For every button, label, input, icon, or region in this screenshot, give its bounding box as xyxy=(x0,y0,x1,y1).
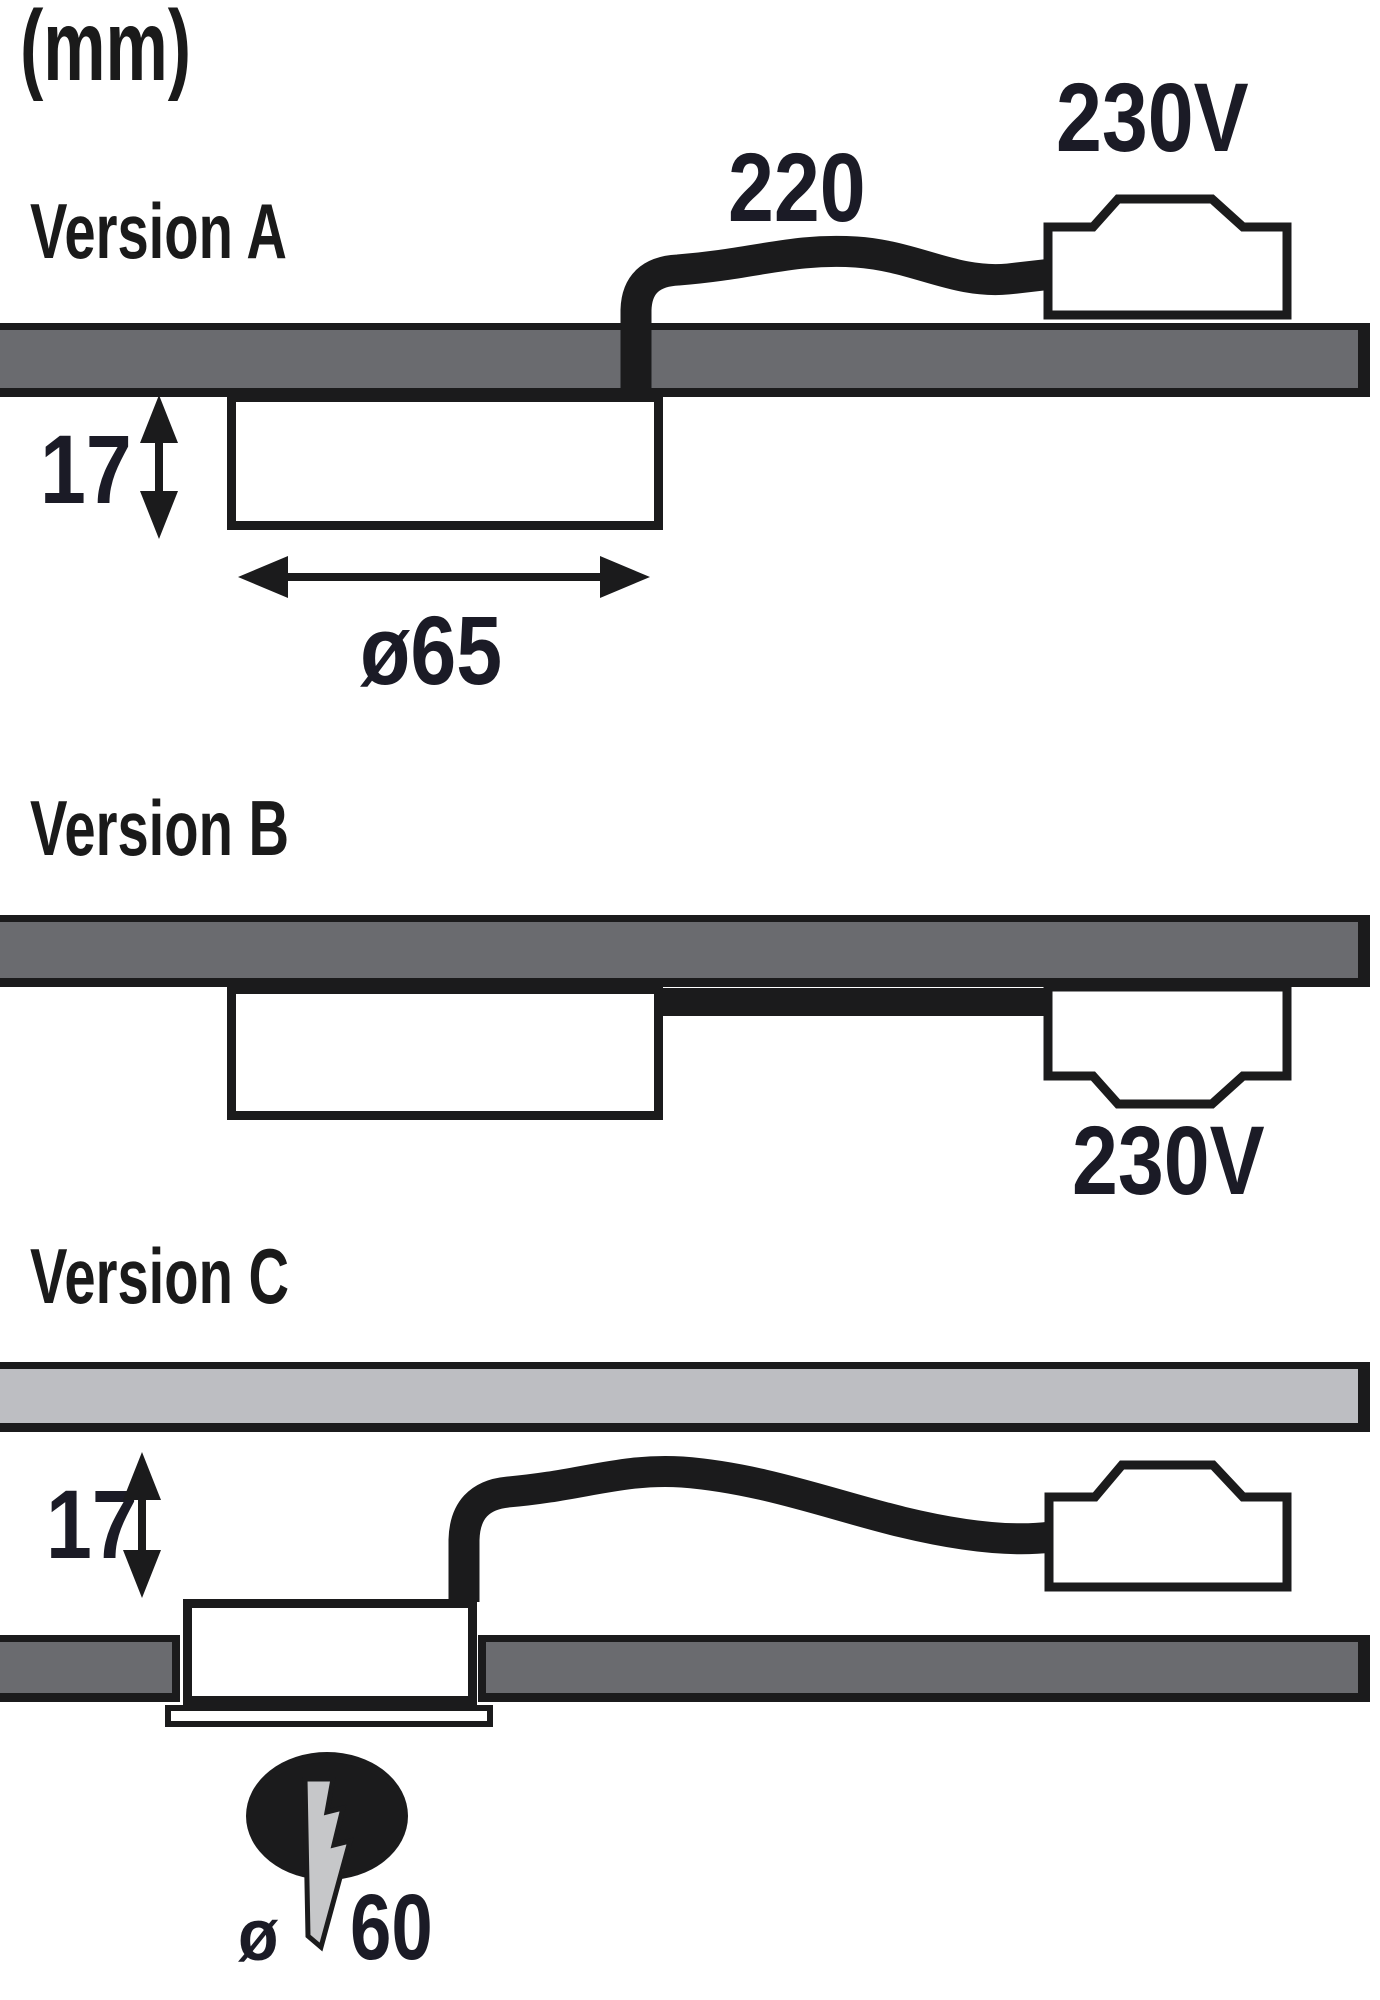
version-a-depth-label: 17 xyxy=(40,421,132,518)
version-c-trim-ring xyxy=(165,1705,493,1727)
version-c-depth-label: 17 xyxy=(46,1476,138,1573)
version-b-label: Version B xyxy=(30,789,289,867)
version-a-cable-length-label: 220 xyxy=(728,139,866,236)
version-c-hole-diameter-label: 60 xyxy=(350,1881,433,1974)
version-c-lower-board-left xyxy=(0,1635,180,1702)
lightning-bolt-icon xyxy=(305,1779,350,1947)
version-a-diameter-arrow-icon xyxy=(238,556,650,598)
version-c-label: Version C xyxy=(30,1237,289,1315)
version-c-plug-icon xyxy=(1049,1465,1287,1587)
version-a-label: Version A xyxy=(30,192,287,270)
version-a-diameter-label: ø65 xyxy=(360,602,502,699)
version-b-plug-icon xyxy=(1048,987,1287,1104)
version-a-luminaire-housing xyxy=(227,393,663,530)
version-a-plug-icon xyxy=(1048,199,1287,315)
version-a-depth-arrow-icon xyxy=(140,395,178,539)
version-b-luminaire-housing xyxy=(227,985,663,1120)
version-c-luminaire-housing xyxy=(183,1599,477,1705)
version-a-furniture-board xyxy=(0,323,1370,397)
unit-label: (mm) xyxy=(20,0,191,96)
version-c-cable xyxy=(464,1471,1051,1602)
light-spot-ellipse-icon xyxy=(246,1752,408,1880)
version-c-hole-symbol: ø xyxy=(238,1900,278,1972)
version-b-furniture-board xyxy=(0,915,1370,987)
version-c-lower-board-right xyxy=(478,1635,1370,1702)
version-b-voltage-label: 230V xyxy=(1072,1112,1265,1209)
version-a-voltage-label: 230V xyxy=(1056,69,1249,166)
version-c-upper-panel xyxy=(0,1362,1370,1432)
version-b-flat-cable xyxy=(660,988,1055,1016)
installation-dimension-diagram: (mm) Version A 220 230V 17 ø65 Version B… xyxy=(0,0,1380,2000)
